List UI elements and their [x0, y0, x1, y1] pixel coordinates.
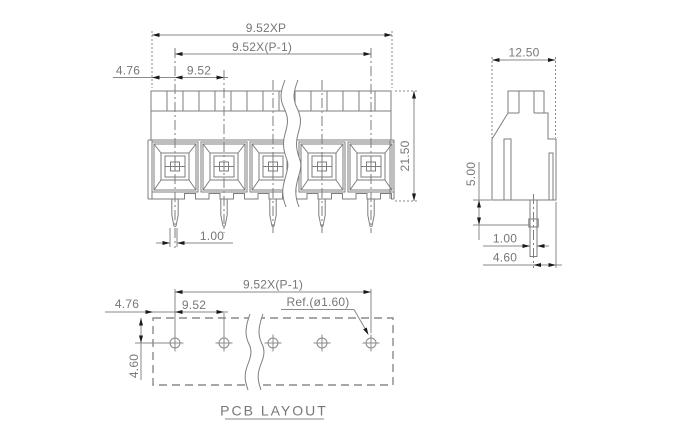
caption-pcb-layout: PCB LAYOUT	[220, 403, 328, 419]
terminal-block-drawing: 9.52XP 9.52X(P-1) 4.76 9.52 21.50 1.00 1…	[0, 0, 680, 440]
ref-leader-arrow	[363, 327, 370, 335]
dim-front-pitch-span: 9.52X(P-1)	[232, 40, 292, 54]
dimension-lines	[105, 35, 562, 419]
front-view-break	[281, 80, 301, 207]
pcb-break	[245, 314, 264, 390]
pcb-hole-3	[265, 335, 282, 352]
dim-front-pin-width: 1.00	[200, 229, 224, 243]
dim-front-pitch: 9.52	[187, 64, 211, 78]
technical-drawing-canvas: 9.52XP 9.52X(P-1) 4.76 9.52 21.50 1.00 1…	[0, 0, 680, 440]
front-view-comb	[151, 91, 391, 140]
pcb-hole-2	[216, 335, 233, 352]
terminal-unit-1	[152, 142, 198, 192]
pcb-holes	[167, 335, 380, 352]
dim-front-total-width: 9.52XP	[246, 21, 287, 35]
front-view	[148, 91, 394, 227]
terminal-unit-5	[348, 142, 394, 192]
center-lines	[175, 48, 534, 268]
dim-side-width: 12.50	[508, 46, 539, 60]
pcb-hole-1	[167, 335, 184, 352]
side-view-outline	[492, 91, 556, 200]
side-view-inner-slots	[504, 139, 553, 200]
dim-pcb-row-offset: 4.60	[127, 354, 141, 378]
dimension-texts: 9.52XP 9.52X(P-1) 4.76 9.52 21.50 1.00 1…	[115, 21, 540, 419]
dim-pcb-pitch-span: 9.52X(P-1)	[243, 278, 303, 292]
dim-pcb-end-margin: 4.76	[115, 297, 139, 311]
dim-pcb-pitch: 9.52	[182, 298, 206, 312]
dim-pcb-hole-ref: Ref.(ø1.60)	[287, 295, 350, 309]
dim-front-height: 21.50	[398, 140, 412, 171]
front-view-bottom-castellation	[148, 194, 394, 200]
dimension-layer: 9.52XP 9.52X(P-1) 4.76 9.52 21.50 1.00 1…	[105, 21, 562, 419]
dim-side-pin-offset: 4.60	[493, 251, 517, 265]
side-view-top-slots	[508, 91, 544, 113]
pcb-layout	[153, 314, 393, 390]
dim-side-pin-length: 5.00	[464, 162, 478, 186]
dim-front-end-margin: 4.76	[116, 64, 140, 78]
dim-side-pin-width: 1.00	[493, 232, 517, 246]
pcb-hole-4	[314, 335, 331, 352]
pcb-hole-5	[363, 335, 380, 352]
